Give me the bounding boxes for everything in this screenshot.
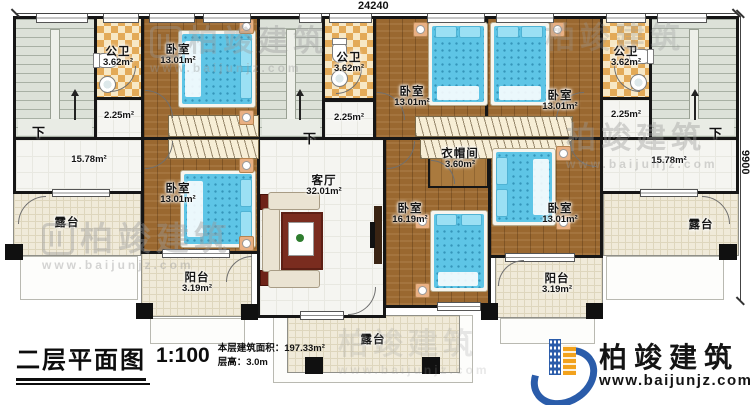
room-label-hall-middle-small: 2.25m² xyxy=(334,113,364,123)
window xyxy=(149,13,195,23)
room-label-bath-left: 公卫3.62m² xyxy=(103,46,133,69)
room-label-bath-middle: 公卫3.62m² xyxy=(334,52,364,75)
stairwell-middle xyxy=(257,16,325,140)
floor-plan: 公卫3.62m² 卧室13.01m² 2.25m² 15.78m² 卧室13.0… xyxy=(0,0,750,405)
pillow xyxy=(521,26,543,38)
room-label-bath-right: 公卫3.62m² xyxy=(611,46,641,69)
logo-building-orange xyxy=(563,345,576,375)
column xyxy=(136,303,153,319)
wardrobe xyxy=(415,116,573,137)
nightstand xyxy=(239,236,254,251)
tv-cabinet xyxy=(374,206,382,264)
terrace-apron xyxy=(20,256,138,300)
window xyxy=(203,13,251,23)
pillow xyxy=(459,26,481,38)
room-label-balcony-right: 阳台3.19m² xyxy=(542,273,572,296)
room-label-terrace-bottom: 露台 xyxy=(361,334,386,346)
tv-icon xyxy=(370,222,375,248)
dimension-top-value: 24240 xyxy=(358,0,389,12)
column xyxy=(5,244,23,260)
room-label-bedroom-top-middle-left: 卧室13.01m² xyxy=(394,86,429,109)
brand-logo-text: 柏竣建筑 www.baijunjz.com xyxy=(599,343,750,389)
hall-left-floor xyxy=(13,137,144,194)
sheet xyxy=(437,86,479,100)
stair-down-label: 下 xyxy=(32,122,45,141)
stair-down-label: 下 xyxy=(709,123,722,142)
bed xyxy=(178,30,256,108)
room-label-bedroom-top-left: 卧室13.01m² xyxy=(160,44,195,67)
pillow xyxy=(496,157,508,185)
room-label-terrace-right: 露台 xyxy=(689,219,714,231)
nightstand xyxy=(239,110,254,125)
plant xyxy=(296,234,304,242)
window xyxy=(657,13,707,23)
terrace-apron xyxy=(606,256,724,300)
window xyxy=(299,13,322,23)
logo-building-blue xyxy=(549,339,561,375)
brand-name: 柏竣建筑 xyxy=(599,343,750,372)
pillow xyxy=(436,214,457,226)
dimension-right-value: 9900 xyxy=(739,150,750,174)
nightstand xyxy=(556,146,571,161)
bed xyxy=(428,22,488,106)
pillow xyxy=(461,214,482,226)
sofa xyxy=(262,208,280,272)
sofa xyxy=(268,270,320,288)
brand-website: www.baijunjz.com xyxy=(599,372,750,389)
plan-scale: 1:100 xyxy=(156,344,210,368)
room-label-terrace-left: 露台 xyxy=(55,217,80,229)
brand-logo: 柏竣建筑 www.baijunjz.com xyxy=(527,333,750,399)
column xyxy=(481,303,498,320)
window xyxy=(437,302,481,311)
stair-rail xyxy=(286,29,296,123)
column xyxy=(586,303,603,319)
nightstand xyxy=(413,22,428,37)
pillow xyxy=(497,26,519,38)
window xyxy=(496,13,554,23)
nightstand xyxy=(550,22,565,37)
window xyxy=(103,13,139,23)
stair-direction-arrow xyxy=(299,92,301,120)
nightstand xyxy=(415,283,430,298)
dimension-line-top xyxy=(15,13,737,14)
stair-direction-arrow xyxy=(74,92,76,120)
window xyxy=(427,13,485,23)
room-label-bedroom-bottom-left: 卧室13.01m² xyxy=(160,183,195,206)
pillow xyxy=(240,179,252,207)
stairwell-right xyxy=(649,16,739,140)
room-label-hall-right-small: 2.25m² xyxy=(611,110,641,120)
plan-area: 本层建筑面积：197.33m² xyxy=(218,342,325,356)
bed xyxy=(430,210,488,292)
window xyxy=(606,13,646,23)
window xyxy=(52,189,110,197)
room-label-hall-left: 15.78m² xyxy=(71,155,106,165)
room-label-living-room: 客厅32.01m² xyxy=(306,175,341,198)
title-block: 二层平面图 1:100 本层建筑面积：197.33m² 层高：3.0m xyxy=(16,340,325,381)
pillow xyxy=(240,211,252,239)
sheet xyxy=(499,86,541,100)
column xyxy=(422,357,440,374)
stair-direction-arrow xyxy=(694,92,696,120)
window xyxy=(640,189,698,197)
pillow xyxy=(240,71,252,99)
bed xyxy=(490,22,550,106)
column xyxy=(241,304,258,320)
room-label-bedroom-master: 卧室16.19m² xyxy=(392,203,427,226)
window xyxy=(300,311,344,320)
room-label-hall-right: 15.78m² xyxy=(651,156,686,166)
room-label-bedroom-bottom-middle: 卧室13.01m² xyxy=(542,203,577,226)
stair-landing xyxy=(18,119,92,135)
stair-rail xyxy=(50,29,60,123)
room-label-cloakroom: 衣帽间3.60m² xyxy=(441,148,479,171)
room-label-hall-left-small: 2.25m² xyxy=(104,111,134,121)
nightstand xyxy=(239,158,254,173)
wardrobe xyxy=(168,139,259,159)
plan-info: 本层建筑面积：197.33m² 层高：3.0m xyxy=(218,342,325,371)
brand-logo-icon xyxy=(527,333,599,399)
pillow xyxy=(496,189,508,217)
plan-floor-height: 层高：3.0m xyxy=(218,356,325,370)
window xyxy=(162,249,230,258)
room-label-bedroom-top-middle-right: 卧室13.01m² xyxy=(542,90,577,113)
sheet xyxy=(438,272,478,286)
window xyxy=(329,13,372,23)
room-label-balcony-left: 阳台3.19m² xyxy=(182,272,212,295)
plan-title: 二层平面图 xyxy=(16,340,146,381)
stair-down-label: 下 xyxy=(303,128,316,147)
pillow xyxy=(240,39,252,67)
column xyxy=(719,244,737,260)
stairwell-left xyxy=(13,16,97,140)
pillow xyxy=(435,26,457,38)
window xyxy=(36,13,88,23)
